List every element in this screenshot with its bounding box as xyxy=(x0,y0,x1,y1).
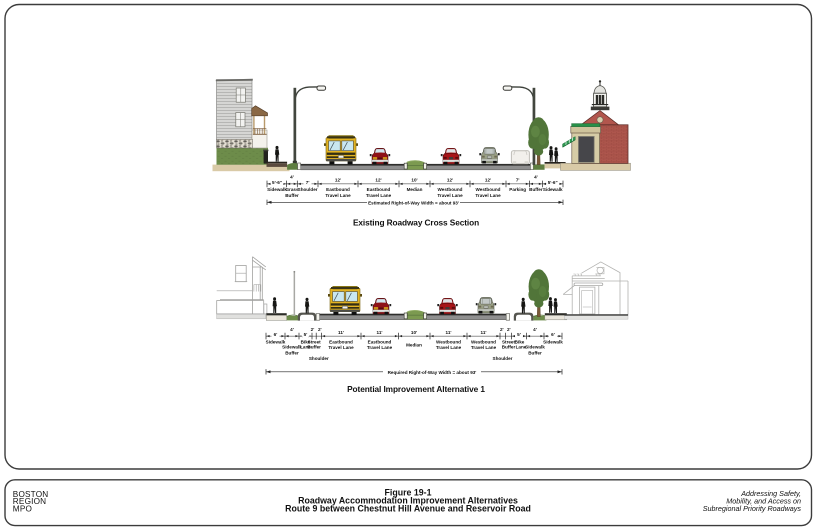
svg-text:Shoulder: Shoulder xyxy=(493,356,513,361)
svg-text:Buffer: Buffer xyxy=(529,187,543,192)
svg-text:Shoulder: Shoulder xyxy=(309,356,329,361)
svg-text:4': 4' xyxy=(290,327,294,332)
svg-text:Travel Lane: Travel Lane xyxy=(437,193,463,198)
svg-text:2': 2' xyxy=(500,327,504,332)
svg-text:Shoulder: Shoulder xyxy=(298,187,318,192)
svg-text:Buffer: Buffer xyxy=(502,345,516,350)
svg-text:2': 2' xyxy=(507,327,511,332)
svg-text:Westbound: Westbound xyxy=(476,187,501,192)
svg-text:6': 6' xyxy=(551,332,555,337)
svg-text:12': 12' xyxy=(375,178,381,183)
svg-text:Travel Lane: Travel Lane xyxy=(471,345,497,350)
svg-text:Buffer: Buffer xyxy=(528,350,542,355)
svg-text:7': 7' xyxy=(516,178,520,183)
svg-text:Median: Median xyxy=(406,342,422,347)
svg-text:2': 2' xyxy=(318,327,322,332)
svg-text:Sidewalk: Sidewalk xyxy=(525,345,545,350)
svg-text:10': 10' xyxy=(411,330,417,335)
svg-text:11': 11' xyxy=(446,330,452,335)
svg-text:11': 11' xyxy=(338,330,344,335)
svg-text:Eastbound: Eastbound xyxy=(329,339,353,344)
svg-text:10': 10' xyxy=(411,178,417,183)
svg-text:Westbound: Westbound xyxy=(471,339,496,344)
svg-text:Parking: Parking xyxy=(509,187,526,192)
svg-text:Travel Lane: Travel Lane xyxy=(475,193,501,198)
svg-text:2': 2' xyxy=(311,327,315,332)
svg-text:Travel Lane: Travel Lane xyxy=(436,345,462,350)
svg-text:Eastbound: Eastbound xyxy=(326,187,350,192)
svg-text:Buffer: Buffer xyxy=(285,350,299,355)
svg-text:7': 7' xyxy=(306,180,310,185)
svg-text:Travel Lane: Travel Lane xyxy=(328,345,354,350)
svg-text:5': 5' xyxy=(304,332,308,337)
svg-text:Median: Median xyxy=(407,187,423,192)
svg-text:Travel Lane: Travel Lane xyxy=(366,193,392,198)
svg-text:5': 5' xyxy=(517,332,521,337)
svg-text:12': 12' xyxy=(335,178,341,183)
svg-text:5'-6": 5'-6" xyxy=(272,180,282,185)
svg-text:Route 9 between Chestnut Hill: Route 9 between Chestnut Hill Avenue and… xyxy=(285,503,531,513)
svg-text:Sidewalk: Sidewalk xyxy=(267,187,287,192)
svg-text:Potential Improvement Alternat: Potential Improvement Alternative 1 xyxy=(347,384,485,394)
svg-text:Travel Lane: Travel Lane xyxy=(325,193,351,198)
svg-text:4': 4' xyxy=(290,175,294,180)
svg-text:11': 11' xyxy=(377,330,383,335)
svg-text:4': 4' xyxy=(533,327,537,332)
svg-text:6': 6' xyxy=(274,332,278,337)
svg-text:Subregional Priority Roadways: Subregional Priority Roadways xyxy=(703,504,802,513)
svg-text:12': 12' xyxy=(485,178,491,183)
svg-text:Eastbound: Eastbound xyxy=(367,187,391,192)
svg-text:11': 11' xyxy=(481,330,487,335)
svg-text:Buffer: Buffer xyxy=(307,345,321,350)
svg-text:Sidewalk: Sidewalk xyxy=(543,187,563,192)
svg-text:Eastbound: Eastbound xyxy=(368,339,392,344)
svg-text:Existing Roadway Cross Section: Existing Roadway Cross Section xyxy=(353,217,479,227)
svg-text:Buffer: Buffer xyxy=(285,193,299,198)
svg-text:MPO: MPO xyxy=(13,504,32,513)
svg-text:Estimated Right-of-Way Width =: Estimated Right-of-Way Width = about 93' xyxy=(368,200,459,205)
svg-text:Required Right-of-Way Width =: Required Right-of-Way Width = about 93' xyxy=(388,370,477,375)
svg-text:4': 4' xyxy=(534,175,538,180)
svg-text:Westbound: Westbound xyxy=(438,187,463,192)
svg-text:12': 12' xyxy=(447,178,453,183)
svg-text:5'-6": 5'-6" xyxy=(548,180,558,185)
svg-text:Westbound: Westbound xyxy=(436,339,461,344)
svg-text:Sidewalk: Sidewalk xyxy=(543,339,563,344)
svg-text:Travel Lane: Travel Lane xyxy=(367,345,393,350)
